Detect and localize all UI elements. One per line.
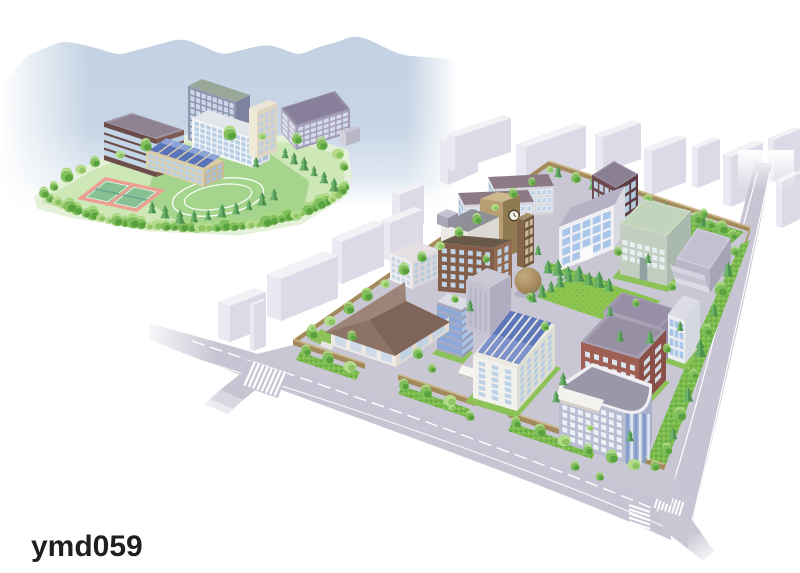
svg-text:ymd059: ymd059 (31, 530, 143, 563)
